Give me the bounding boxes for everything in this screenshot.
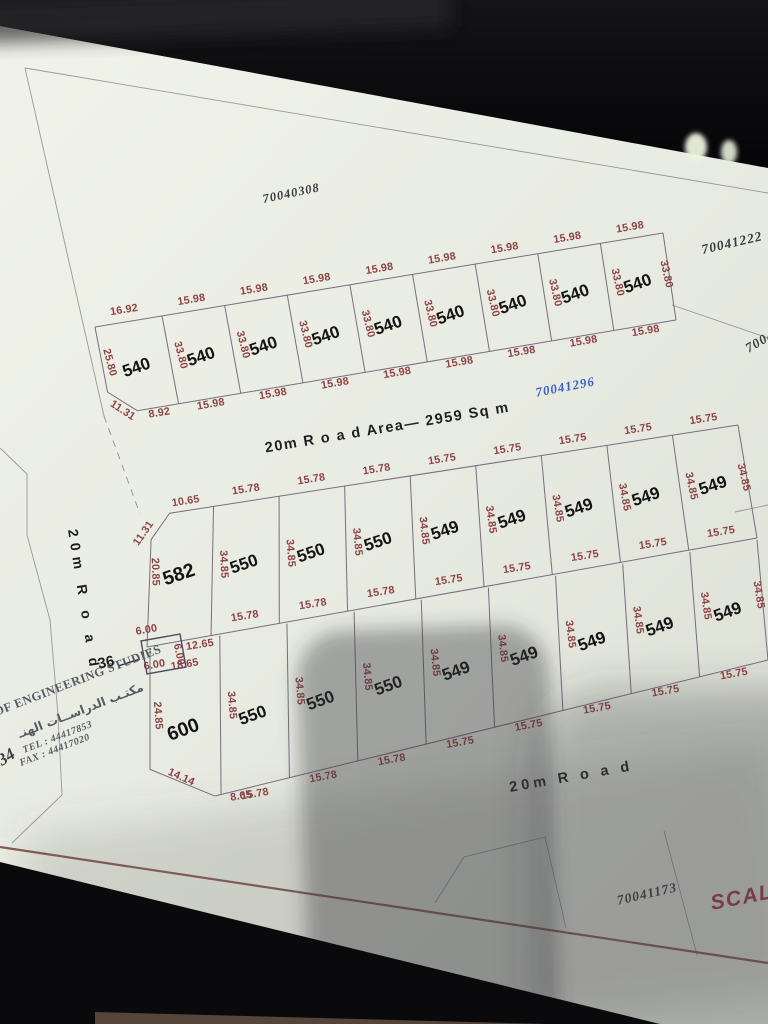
dimension-side: 20.85 xyxy=(149,558,162,586)
light-spot xyxy=(721,140,737,164)
dimension-side: 34.85 xyxy=(217,550,230,579)
survey-plan-photo: 54016.9225.808.9211.3154015.9833.8015.98… xyxy=(0,0,768,1024)
dimension-side: 34.85 xyxy=(283,539,297,568)
phone-shadow xyxy=(535,688,768,1024)
dimension-side: 24.85 xyxy=(151,701,165,730)
light-spot xyxy=(685,133,707,161)
dimension-side: 34.85 xyxy=(225,691,239,720)
